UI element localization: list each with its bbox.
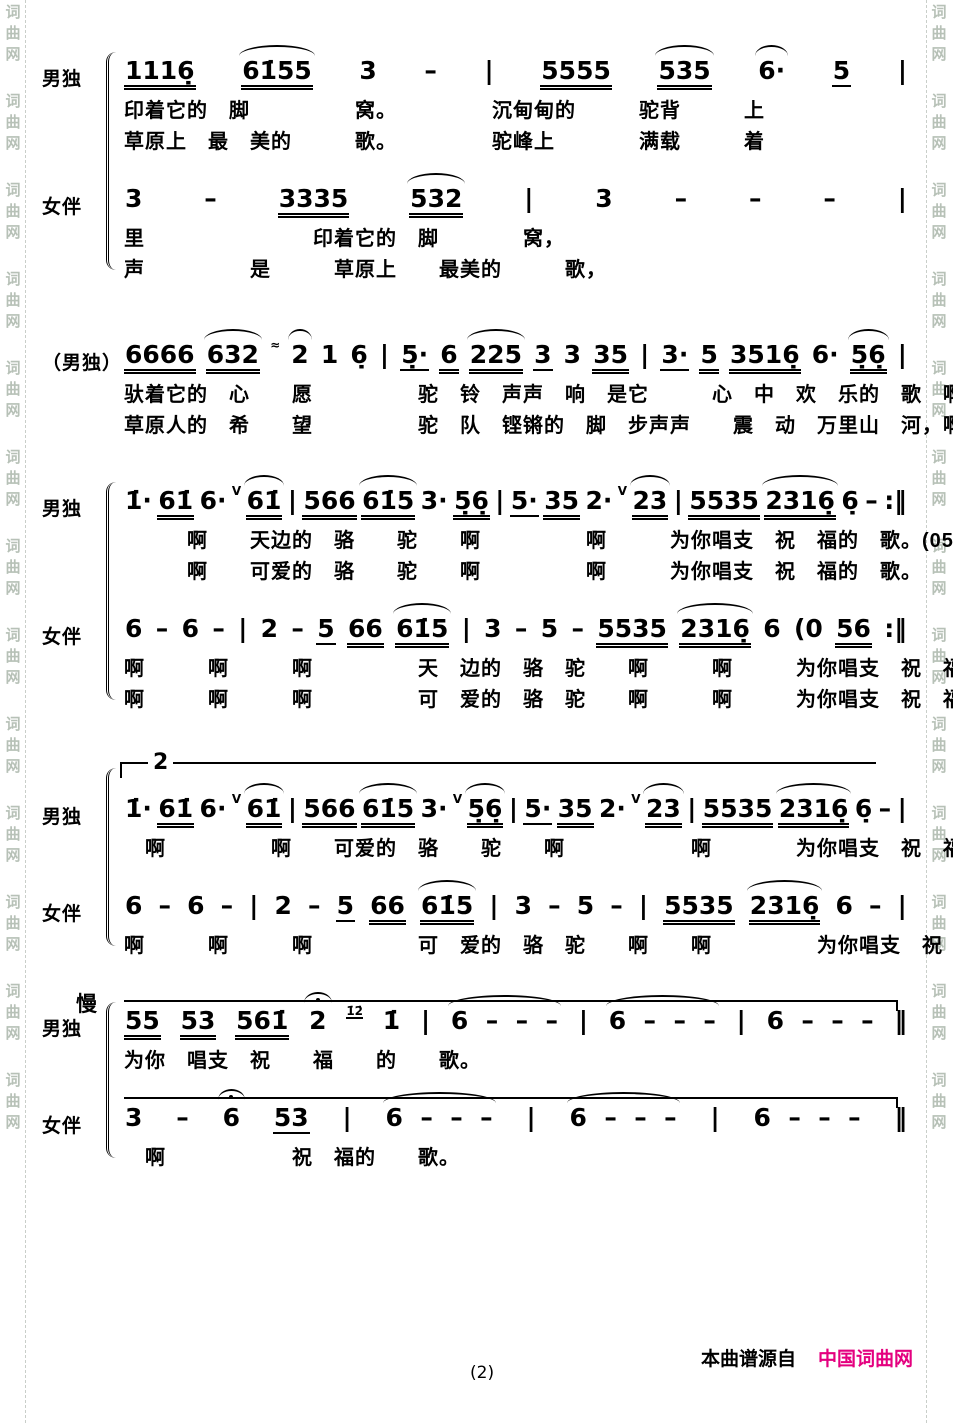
barline: | [897,342,908,369]
note-token: 5̣6̣ [467,796,504,825]
watermark-group: 词曲网 [3,803,23,866]
watermark-char: 词 [3,981,23,1002]
note-token: 6 [835,893,854,920]
barline: | [287,488,298,515]
note-token: 6̣ [840,488,859,515]
barline: :‖ [883,488,908,515]
note-token: 5̣6̣ [453,488,490,517]
watermark-group: 词曲网 [929,714,949,777]
lyric-line: 草原上 最 美的 歌。 驼峰上 满载 着 [124,127,910,158]
watermark-char: 词 [3,536,23,557]
watermark-group: 词曲网 [3,180,23,243]
watermark-char: 词 [3,180,23,201]
note-token: 5 [699,342,718,371]
watermark-char: 曲 [3,112,23,133]
note-token: 6· [757,58,786,85]
part-label: 男独 [42,64,122,91]
note-token: 23 [632,488,669,517]
note-token: 61̇ [157,488,194,517]
right-watermark-column: 词曲网词曲网词曲网词曲网词曲网词曲网词曲网词曲网词曲网词曲网词曲网词曲网词曲网 [929,2,949,1423]
watermark-char: 网 [3,934,23,955]
note-token: 56 [835,616,872,645]
note-token: 2 [260,616,279,643]
notation-row: 3–653|6 – – –|6 – – –|6 – – –‖ [124,1089,910,1143]
note-token: 3· [420,488,449,515]
note-token: 5535 [702,796,774,825]
watermark-group: 词曲网 [929,1070,949,1133]
note-token: V [618,485,627,497]
credit-site-link[interactable]: 中国词曲网 [818,1349,913,1370]
barline: | [461,616,472,643]
note-token: 6 – – – [608,1008,717,1035]
note-token: 3 [483,616,502,643]
watermark-char: 网 [3,578,23,599]
notation-row: 3–3335532|3–––| [124,170,910,224]
note-token: 61̇ [246,796,283,825]
note-token: (0 [793,616,824,643]
note-token: 2316̣ [749,893,821,922]
barline: | [484,58,495,85]
note-token: 5̣6̣ [850,342,887,371]
note-token: 66 [369,893,406,922]
watermark-char: 网 [929,489,949,510]
barline: | [526,1105,537,1132]
note-token: – [864,488,879,515]
note-token: 1̇· [124,488,153,515]
part-label: 女伴 [42,899,122,926]
watermark-char: 网 [3,133,23,154]
lyric-line: 啊 啊 可爱的 骆 驼 啊 啊 为你唱支 祝 福的 歌。 [124,834,910,865]
watermark-char: 词 [3,803,23,824]
watermark-char: 网 [3,1023,23,1044]
part-label: 女伴 [42,192,122,219]
watermark-char: 词 [929,803,949,824]
lyric-line: 啊 可爱的 骆 驼 啊 啊 为你唱支 祝 福的 歌。 啊 [124,557,910,588]
notation-row: 6–6–|2–56661̇5|3–5–55352316̣6(056:‖ [124,600,910,654]
note-token: 6 [124,616,143,643]
note-token: 2 [274,893,293,920]
barline: | [488,893,499,920]
watermark-char: 曲 [3,735,23,756]
watermark-char: 词 [929,981,949,1002]
barline: | [639,342,650,369]
barline: | [248,893,259,920]
staff-part: 男独5553561̇21̇2̇1̇|6 – – –|6 – – –|6 – – … [40,992,910,1077]
note-token: 2· [598,796,627,823]
note-token: 6 [124,893,143,920]
note-token: 6̣ [349,342,368,369]
watermark-char: 词 [3,269,23,290]
note-token: 6 [186,893,205,920]
watermark-char: 词 [929,269,949,290]
note-token: 53 [273,1105,310,1134]
lyric-line: 啊 啊 啊 天 边的 骆 驼 啊 啊 为你唱支 祝 福的 歌。 啊 [124,654,910,685]
note-token: 5̣· [400,342,429,371]
lyric-line: 声 是 草原上 最美的 歌， [124,255,910,286]
watermark-group: 词曲网 [3,625,23,688]
barline: | [578,1008,589,1035]
note-token: – [878,796,893,823]
barline: | [237,616,248,643]
part-label: （男独） [42,348,122,375]
watermark-char: 词 [929,2,949,23]
watermark-char: 词 [3,892,23,913]
barline: | [523,186,534,213]
note-token: 35 [557,796,594,825]
note-token: V [631,793,640,805]
watermark-char: 曲 [929,23,949,44]
notation-row: 1̇·61̇6·V61̇|56661̇53·V5̣6̣|5·352·V23|55… [124,780,910,834]
watermark-char: 曲 [929,112,949,133]
note-token: 35 [543,488,580,517]
note-token: 561̇ [235,1008,289,1037]
note-token: 535 [657,58,711,87]
barline: | [897,186,908,213]
watermark-char: 词 [3,91,23,112]
watermark-char: 词 [929,91,949,112]
note-token: 1̇ [382,1008,401,1035]
note-token: 1̇2̇ [346,1005,363,1019]
barline: | [638,893,649,920]
note-token: 3516̣ [729,342,801,371]
note-token: 6 [222,1105,241,1132]
watermark-char: 词 [929,714,949,735]
note-token: 6 [439,342,458,371]
watermark-char: 曲 [929,290,949,311]
watermark-char: 曲 [929,201,949,222]
watermark-group: 词曲网 [3,447,23,510]
note-token: – [547,893,562,920]
watermark-char: 词 [929,358,949,379]
note-token: 6 – – – [753,1105,862,1132]
note-token: 5 [336,893,355,922]
note-token: 6· [199,488,228,515]
watermark-group: 词曲网 [929,981,949,1044]
note-token: 5 [540,616,559,643]
watermark-char: 网 [3,311,23,332]
watermark-char: 曲 [3,646,23,667]
watermark-char: 词 [929,625,949,646]
notation-row: 6–6–|2–56661̇5|3–5–|55352316̣6–| [124,877,910,931]
barline: | [686,796,697,823]
note-token: 23 [645,796,682,825]
watermark-group: 词曲网 [3,91,23,154]
barline: | [897,58,908,85]
note-token: 1̇· [124,796,153,823]
staff-part: 女伴6–6–|2–56661̇5|3–5–55352316̣6(056:‖啊 啊… [40,600,910,716]
note-token: 3· [660,342,689,371]
watermark-group: 词曲网 [3,269,23,332]
note-token: – [220,893,235,920]
note-token: – [175,1105,190,1132]
note-token: 6 [181,616,200,643]
watermark-group: 词曲网 [929,91,949,154]
system: 慢男独5553561̇21̇2̇1̇|6 – – –|6 – – –|6 – –… [40,992,910,1174]
watermark-char: 网 [3,845,23,866]
watermark-char: 曲 [3,557,23,578]
note-token: – [822,186,837,213]
watermark-char: 网 [3,489,23,510]
note-token: 3 [594,186,613,213]
watermark-group: 词曲网 [929,269,949,332]
lyric-line: 为你 唱支 祝 福 的 歌。 [124,1046,910,1077]
note-token: 566 [302,488,356,517]
note-token: 55 [124,1008,161,1037]
staff-part: （男独）6666632≈216̣|5̣·62253335|3·53516̣6·5… [40,326,910,442]
note-token: 5555 [540,58,612,87]
part-label: 女伴 [42,622,122,649]
note-token: 6666 [124,342,196,371]
note-token: 6· [199,796,228,823]
part-label: 女伴 [42,1111,122,1138]
credit-prefix-label: 本曲谱源自 [701,1349,796,1370]
note-token: 6· [811,342,840,369]
note-token: V [232,793,241,805]
watermark-char: 曲 [3,468,23,489]
watermark-char: 曲 [3,290,23,311]
watermark-group: 词曲网 [3,2,23,65]
note-token: – [307,893,322,920]
staff-part: 男独1116̣61̇553–|55555356·5|印着它的 脚 窝。 沉甸甸的… [40,42,910,158]
watermark-group: 词曲网 [3,358,23,421]
note-token: 1 [320,342,339,369]
barline: | [736,1008,747,1035]
note-token: 632 [206,342,260,371]
watermark-char: 曲 [929,1002,949,1023]
barline: | [897,796,908,823]
watermark-group: 词曲网 [929,447,949,510]
watermark-char: 网 [3,44,23,65]
note-token: 61̇5 [361,488,415,517]
note-token: 3 [358,58,377,85]
note-token: 5· [523,796,552,825]
note-token: 2 [308,1008,327,1035]
note-token: 2316̣ [778,796,850,825]
watermark-char: 网 [3,1112,23,1133]
part-label: 男独 [42,494,122,521]
note-token: V [453,793,462,805]
note-token: 5 [316,616,335,645]
watermark-char: 曲 [929,913,949,934]
barline: :‖ [883,616,908,643]
note-token: 66 [347,616,384,645]
note-token: – [514,616,529,643]
note-token: – [868,893,883,920]
note-token: – [609,893,624,920]
note-token: 6 – – – [569,1105,678,1132]
barline: ‖ [894,1105,909,1132]
barline: | [342,1105,353,1132]
lyric-line: 驮着它的 心 愿 驼 铃 声声 响 是它 心 中 欢 乐的 歌 啊 [124,380,910,411]
watermark-char: 曲 [929,735,949,756]
notation-row: 6666632≈216̣|5̣·62253335|3·53516̣6·5̣6̣| [124,326,910,380]
note-token: 5· [510,488,539,517]
part-label: 男独 [42,1014,122,1041]
watermark-group: 词曲网 [3,714,23,777]
score-area: 男独1116̣61̇553–|55555356·5|印着它的 脚 窝。 沉甸甸的… [40,42,910,1186]
barline: | [494,488,505,515]
volta-bracket: 2 [120,762,876,778]
right-dashed-border [926,0,927,1423]
lyric-line: 啊 啊 啊 可 爱的 骆 驼 啊 啊 为你唱支 祝 福的 歌。 [124,931,910,962]
watermark-char: 曲 [929,1091,949,1112]
note-token: 61̇ [157,796,194,825]
note-token: 53 [180,1008,217,1037]
volta-number: 2 [148,750,173,775]
note-token: 6̣ [854,796,873,823]
system: 男独1̇·61̇6·V61̇|56661̇53·5̣6̣|5·352·V23|5… [40,472,910,716]
note-token: 61̇5 [420,893,474,922]
watermark-char: 网 [3,667,23,688]
note-token: – [748,186,763,213]
note-token: 61̇55 [241,58,313,87]
note-token: – [155,616,170,643]
notation-row: 1116̣61̇553–|55555356·5| [124,42,910,96]
note-token: 3 [563,342,582,369]
lyric-line: 啊 啊 啊 可 爱的 骆 驼 啊 啊 为你唱支 祝 福的 歌。 啊 [124,685,910,716]
note-token: 3· [420,796,449,823]
watermark-char: 曲 [3,379,23,400]
watermark-char: 词 [929,1070,949,1091]
watermark-char: 网 [929,44,949,65]
note-token: 3 [124,186,143,213]
barline: | [710,1105,721,1132]
watermark-char: 网 [3,222,23,243]
watermark-char: 曲 [3,1002,23,1023]
watermark-char: 曲 [3,824,23,845]
note-token: 532 [409,186,463,215]
note-token: V [232,485,241,497]
lyric-line: 啊 天边的 骆 驼 啊 啊 为你唱支 祝 福的 歌。(056| [124,526,910,557]
note-token: 225 [469,342,523,371]
watermark-group: 词曲网 [3,536,23,599]
watermark-char: 网 [929,311,949,332]
watermark-char: 词 [3,1070,23,1091]
note-token: 566 [302,796,356,825]
note-token: 61̇ [246,488,283,517]
watermark-char: 词 [3,714,23,735]
watermark-group: 词曲网 [3,981,23,1044]
note-token: 2· [584,488,613,515]
lyric-line: 里 印着它的 脚 窝， [124,224,910,255]
note-token: 3 [533,342,552,371]
watermark-group: 词曲网 [929,2,949,65]
note-token: 2 [290,342,309,369]
watermark-char: 网 [3,756,23,777]
notation-row: 1̇·61̇6·V61̇|56661̇53·5̣6̣|5·352·V23|553… [124,472,910,526]
note-token: – [203,186,218,213]
barline: ‖ [893,1008,908,1035]
watermark-char: 词 [3,625,23,646]
note-token: 6 – – – [450,1008,559,1035]
note-token: – [571,616,586,643]
barline: | [897,893,908,920]
lyric-line: 印着它的 脚 窝。 沉甸甸的 驼背 上 [124,96,910,127]
note-token: 3335 [278,186,350,215]
note-token: 6 [762,616,781,643]
note-token: 61̇5 [361,796,415,825]
staff-part: 男独1̇·61̇6·V61̇|56661̇53·5̣6̣|5·352·V23|5… [40,472,910,588]
barline: | [420,1008,431,1035]
barline: | [508,796,519,823]
note-token: – [423,58,438,85]
sheet-music-page: 词曲网词曲网词曲网词曲网词曲网词曲网词曲网词曲网词曲网词曲网词曲网词曲网词曲网 … [0,0,953,1423]
staff-part: 女伴3–653|6 – – –|6 – – –|6 – – –‖ 啊 祝 福的 … [40,1089,910,1174]
note-token: – [290,616,305,643]
note-token: 6 – – – [385,1105,494,1132]
watermark-char: 词 [929,892,949,913]
note-token: 5535 [596,616,668,645]
watermark-char: 网 [929,222,949,243]
left-dashed-border [25,0,26,1423]
watermark-group: 词曲网 [3,1070,23,1133]
system: （男独）6666632≈216̣|5̣·62253335|3·53516̣6·5… [40,326,910,442]
note-token: 35 [592,342,629,371]
watermark-char: 网 [3,400,23,421]
barline: | [673,488,684,515]
note-token: 5 [576,893,595,920]
notation-row: 5553561̇21̇2̇1̇|6 – – –|6 – – –|6 – – –‖ [124,992,910,1046]
note-token: 5535 [688,488,760,517]
watermark-char: 曲 [929,468,949,489]
staff-part: 男独1̇·61̇6·V61̇|56661̇53·V5̣6̣|5·352·V23|… [40,780,910,865]
note-token: 61̇5 [395,616,449,645]
watermark-char: 曲 [3,1091,23,1112]
watermark-char: 曲 [3,201,23,222]
lyric-line: 草原人的 希 望 驼 队 铿锵的 脚 步声声 震 动 万里山 河，啊 [124,411,910,442]
watermark-char: 曲 [3,913,23,934]
note-token: 5 [832,58,851,87]
note-token: 2316̣ [679,616,751,645]
watermark-char: 词 [3,2,23,23]
source-credit: 本曲谱源自中国词曲网 [680,1322,913,1393]
note-token: – [211,616,226,643]
watermark-char: 网 [929,1023,949,1044]
barline: | [379,342,390,369]
watermark-char: 曲 [3,23,23,44]
barline: | [287,796,298,823]
system: 2男独1̇·61̇6·V61̇|56661̇53·V5̣6̣|5·352·V23… [40,758,910,962]
note-token: – [158,893,173,920]
note-token: 6 – – – [766,1008,875,1035]
note-token: 1116̣ [124,58,196,87]
watermark-char: 词 [3,447,23,468]
part-label: 男独 [42,802,122,829]
lyric-line: 啊 祝 福的 歌。 [124,1143,910,1174]
watermark-char: 词 [3,358,23,379]
watermark-char: 词 [929,447,949,468]
staff-part: 女伴6–6–|2–56661̇5|3–5–|55352316̣6–|啊 啊 啊 … [40,877,910,962]
watermark-group: 词曲网 [3,892,23,955]
note-token: – [674,186,689,213]
note-token: 5535 [663,893,735,922]
note-token: 2316̣ [764,488,836,517]
watermark-group: 词曲网 [929,180,949,243]
system: 男独1116̣61̇553–|55555356·5|印着它的 脚 窝。 沉甸甸的… [40,42,910,286]
note-token: ≈ [270,339,280,351]
left-watermark-column: 词曲网词曲网词曲网词曲网词曲网词曲网词曲网词曲网词曲网词曲网词曲网词曲网词曲网 [3,2,23,1423]
watermark-char: 网 [929,133,949,154]
page-number: (2) [470,1363,494,1383]
watermark-char: 网 [929,1112,949,1133]
note-token: 3 [514,893,533,920]
watermark-char: 网 [929,756,949,777]
note-token: 3 [124,1105,143,1132]
staff-part: 女伴3–3335532|3–––|里 印着它的 脚 窝，声 是 草原上 最美的 … [40,170,910,286]
watermark-char: 词 [929,180,949,201]
